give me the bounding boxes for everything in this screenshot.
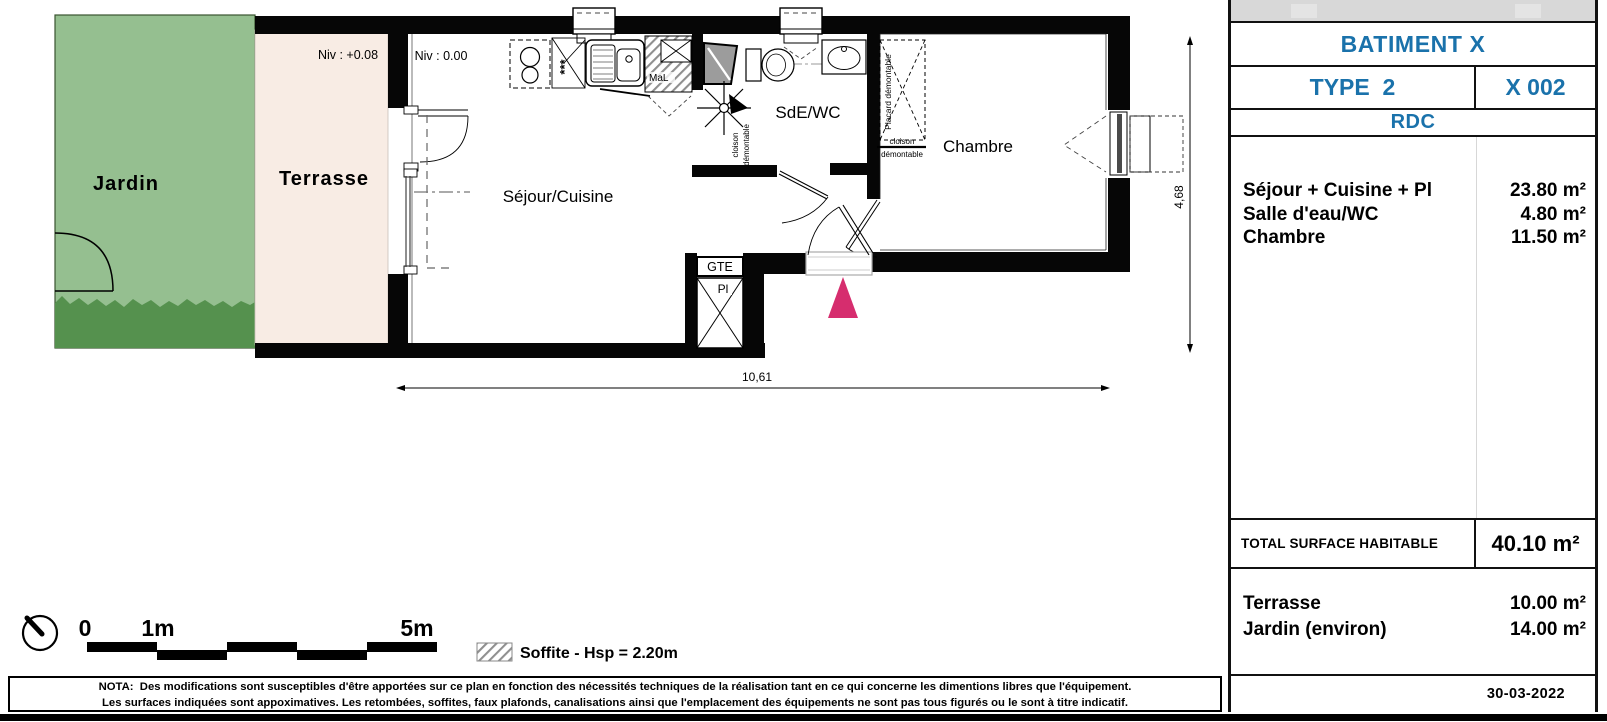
outdoor-area: 14.00 m² — [1510, 617, 1586, 643]
hedge — [55, 296, 255, 348]
logo-remnant — [1291, 4, 1317, 18]
nota-line-1: NOTA: Des modifications sont susceptible… — [10, 680, 1220, 696]
sejour-level-label: Niv : 0.00 — [415, 49, 468, 63]
cloison-label-2b: démontable — [881, 150, 923, 159]
info-panel: BATIMENT X TYPE 2 X 002 RDC Séjour + Cui… — [1228, 0, 1598, 712]
room-areas-section: Séjour + Cuisine + Pl 23.80 m² Salle d'e… — [1231, 137, 1595, 520]
floor-label: RDC — [1231, 110, 1595, 137]
room-area-row: Chambre 11.50 m² — [1243, 226, 1586, 250]
sejour-label: Séjour/Cuisine — [503, 187, 614, 206]
cooktop — [510, 40, 550, 88]
pl-label: Pl — [718, 282, 729, 296]
room-label: Salle d'eau/WC — [1243, 203, 1378, 227]
room-label: Chambre — [1243, 226, 1325, 250]
plan-date: 30-03-2022 — [1231, 676, 1595, 712]
outdoor-area-row: Jardin (environ) 14.00 m² — [1243, 617, 1586, 643]
chambre-door — [846, 200, 880, 257]
type-label: TYPE 2 — [1231, 67, 1476, 108]
chambre-window — [1064, 110, 1183, 178]
type-row: TYPE 2 X 002 — [1231, 67, 1595, 110]
outdoor-area-row: Terrasse 10.00 m² — [1243, 591, 1586, 617]
kitchen-sink — [586, 40, 650, 96]
freezer-stars: *** — [557, 58, 572, 74]
shower — [697, 43, 751, 135]
jardin-label: Jardin — [93, 173, 159, 195]
room-area-row: Séjour + Cuisine + Pl 23.80 m² — [1243, 179, 1586, 203]
sde-door — [779, 171, 828, 223]
cloison-label-1b: démontable — [742, 124, 751, 166]
room-area: 11.50 m² — [1511, 226, 1586, 250]
svg-text:10,61: 10,61 — [742, 370, 772, 384]
washbasin — [822, 40, 866, 74]
cloison-label-1a: cloison — [731, 133, 740, 158]
nota-line-2: Les surfaces indiquées sont appoximative… — [10, 696, 1220, 712]
washing-machine-soffite: MaL — [645, 36, 692, 116]
placard-label: Placard démontable — [883, 54, 893, 130]
outdoor-areas-section: Terrasse 10.00 m² Jardin (environ) 14.00… — [1231, 569, 1595, 676]
sejour-bay-window — [404, 106, 470, 274]
total-surface-row: TOTAL SURFACE HABITABLE 40.10 m² — [1231, 520, 1595, 569]
logo-remnant — [1515, 4, 1541, 18]
gte-closet: GTE Pl — [697, 257, 743, 348]
fridge: *** — [552, 38, 585, 88]
outdoor-area: 10.00 m² — [1510, 591, 1586, 617]
placard-demontable: Placard démontable cloison démontable — [877, 40, 926, 159]
unit-number: X 002 — [1476, 67, 1595, 108]
svg-text:4,68: 4,68 — [1172, 185, 1186, 209]
bottom-divider-bar — [0, 714, 1607, 721]
svg-text:5m: 5m — [400, 615, 433, 641]
terrasse-area: Terrasse Niv : +0.08 — [255, 30, 388, 345]
cloison-label-2a: cloison — [890, 137, 915, 146]
room-label: Séjour + Cuisine + Pl — [1243, 179, 1432, 203]
washing-machine-label: MaL — [649, 73, 669, 84]
room-area: 4.80 m² — [1521, 203, 1586, 227]
svg-text:0: 0 — [79, 615, 92, 641]
outdoor-label: Jardin (environ) — [1243, 617, 1387, 643]
dimension-width: 10,61 — [396, 370, 1110, 391]
room-area: 23.80 m² — [1510, 179, 1586, 203]
soffite-legend: Soffite - Hsp = 2.20m — [477, 643, 678, 662]
nota-box: NOTA: Des modifications sont susceptible… — [8, 676, 1222, 712]
entrance-arrow — [828, 277, 858, 318]
gte-label: GTE — [707, 260, 733, 274]
scale-bar: 0 1m 5m — [79, 615, 437, 660]
svg-text:Soffite - Hsp = 2.20m: Soffite - Hsp = 2.20m — [520, 645, 678, 662]
batiment-title: BATIMENT X — [1231, 23, 1595, 67]
sde-wc-label: SdE/WC — [775, 103, 840, 122]
svg-text:1m: 1m — [141, 615, 174, 641]
floorplan-page: Jardin Terrasse Niv : +0.08 — [0, 0, 1607, 722]
entrance-door-leaf — [839, 207, 869, 255]
room-area-row: Salle d'eau/WC 4.80 m² — [1243, 203, 1586, 227]
jardin-area: Jardin — [55, 15, 255, 348]
total-surface-value: 40.10 m² — [1476, 520, 1595, 567]
panel-header-band — [1231, 0, 1595, 23]
terrasse-level-label: Niv : +0.08 — [318, 48, 378, 62]
chambre-label: Chambre — [943, 137, 1013, 156]
north-compass — [23, 616, 57, 650]
compass-needle — [27, 618, 42, 634]
terrasse-label: Terrasse — [279, 168, 369, 190]
shutter-panel — [1130, 116, 1150, 172]
outdoor-label: Terrasse — [1243, 591, 1321, 617]
dimension-height: 4,68 — [1172, 36, 1193, 353]
total-surface-label: TOTAL SURFACE HABITABLE — [1231, 520, 1476, 567]
